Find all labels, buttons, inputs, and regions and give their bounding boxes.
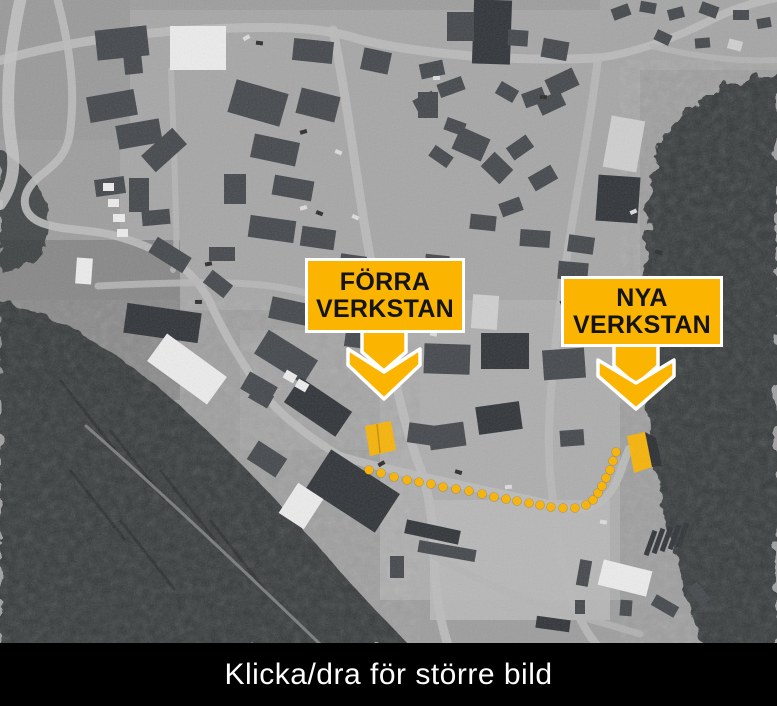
marker-forra-verkstan: FÖRRA VERKSTAN [305,258,465,333]
caption-bar: Klicka/dra för större bild [0,643,777,706]
marker-nya-verkstan: NYA VERKSTAN [561,276,723,347]
marker-forra-label: FÖRRA VERKSTAN [312,269,458,323]
aerial-photo-map[interactable]: FÖRRA VERKSTAN NYA VERKSTAN [0,0,777,643]
caption-text: Klicka/dra för större bild [224,658,552,692]
marker-nya-label: NYA VERKSTAN [568,285,716,339]
annotated-aerial-image: FÖRRA VERKSTAN NYA VERKSTAN Klicka/dra f… [0,0,777,706]
